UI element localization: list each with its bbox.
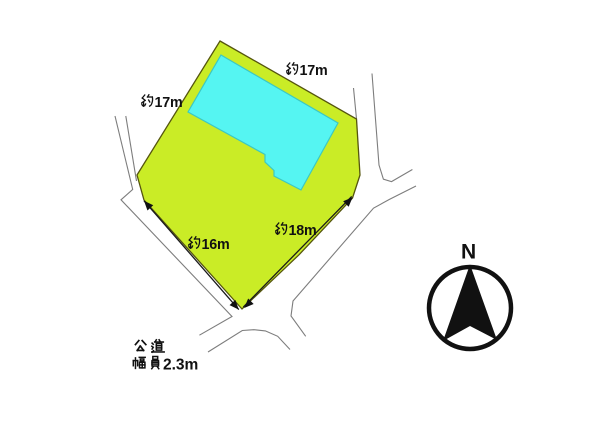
svg-text:N: N: [461, 241, 476, 264]
svg-text:2.3m: 2.3m: [163, 357, 198, 374]
svg-text:17m: 17m: [300, 63, 328, 79]
svg-text:16m: 16m: [202, 237, 230, 253]
svg-text:17m: 17m: [155, 95, 183, 111]
svg-text:18m: 18m: [289, 223, 317, 239]
